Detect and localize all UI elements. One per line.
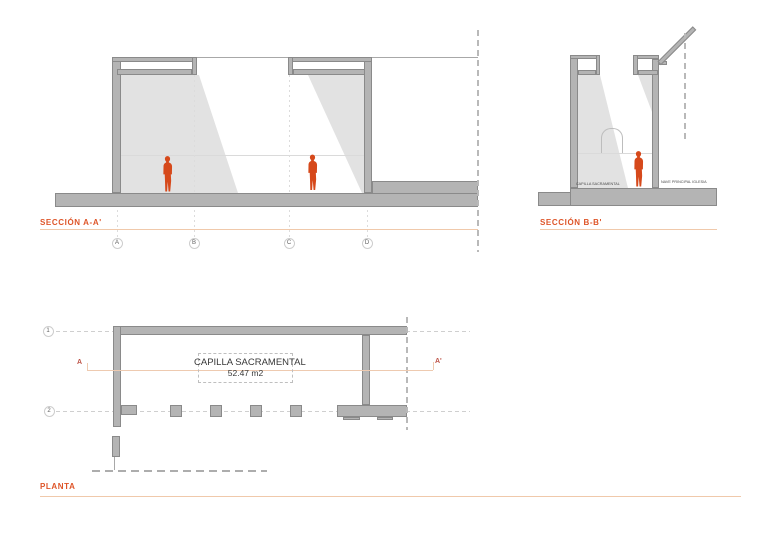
wall-left: [570, 55, 578, 188]
plan-wall-notch: [343, 417, 360, 420]
person-figure: [161, 155, 174, 193]
person-figure: [632, 151, 645, 187]
section-aa-rule: [40, 229, 478, 230]
section-bb-title: SECCIÓN B-B': [540, 218, 602, 227]
skylight-slab: [578, 70, 596, 75]
plan-wall-stub: [121, 405, 137, 415]
section-boundary-dashed-line: [684, 33, 686, 140]
grid-bubble-label: 2: [47, 408, 50, 414]
plan-boundary-dashed-line: [406, 317, 408, 430]
wall-left: [112, 57, 121, 193]
plan-column: [170, 405, 182, 417]
arched-niche: [601, 128, 623, 153]
plan-threshold-dashed-line: [92, 470, 267, 472]
floor-label-nave: NAVE PRINCIPAL IGLESIA: [661, 180, 707, 184]
section-marker-a: A: [77, 359, 82, 366]
grid-bubble-label: 1: [46, 328, 49, 334]
grid-bubble-label: B: [192, 240, 196, 246]
floor-label-capilla: CAPILLA SACRAMENTAL: [576, 182, 620, 186]
grid-bubble-label: D: [365, 240, 369, 246]
plan-column: [290, 405, 302, 417]
gridline-c: [289, 60, 290, 237]
plan-wall-lower-block: [112, 436, 120, 457]
room-area: 52.47 m2: [198, 368, 293, 378]
plan-wall-bottom-right: [337, 405, 407, 417]
grid-bubble-label: A: [115, 240, 119, 246]
grid-bubble-a: A: [112, 238, 123, 249]
grid-bubble-b: B: [189, 238, 200, 249]
section-cut-riser: [87, 363, 88, 370]
architectural-drawing-sheet: SECCIÓN A-A' A B C D: [0, 0, 780, 549]
skylight-slab: [293, 69, 365, 75]
plan-wall-notch: [377, 417, 393, 420]
grid-bubble-label: C: [287, 240, 291, 246]
skylight-post: [596, 55, 600, 75]
skylight-post: [192, 57, 197, 75]
plan-wall-trace-line: [114, 457, 115, 470]
sloped-roof: [657, 26, 696, 65]
plan-column: [250, 405, 262, 417]
plan-rule: [40, 496, 741, 497]
skylight-beam: [112, 57, 197, 62]
ground-slab: [55, 193, 478, 207]
gridline-b: [194, 60, 195, 237]
section-aa-title: SECCIÓN A-A': [40, 218, 102, 227]
wall-right: [364, 58, 372, 193]
plan-wall-left: [113, 326, 121, 427]
section-bb-rule: [540, 229, 717, 230]
section-marker-a-prime: A': [435, 358, 442, 365]
plan-title: PLANTA: [40, 482, 75, 491]
skylight-slab: [117, 69, 192, 75]
ground-slab: [570, 188, 717, 206]
skylight-beam: [288, 57, 372, 62]
skylight-slab: [638, 70, 658, 75]
wall-right: [652, 59, 659, 188]
plan-wall-top: [113, 326, 407, 335]
grid-bubble-c: C: [284, 238, 295, 249]
datum-line: [121, 155, 365, 156]
section-cut-riser: [433, 362, 434, 370]
section-boundary-dashed-line: [477, 30, 479, 252]
grid-bubble-d: D: [362, 238, 373, 249]
plan-column: [210, 405, 222, 417]
grid-bubble-2: 2: [44, 406, 55, 417]
room-name: CAPILLA SACRAMENTAL: [194, 357, 298, 368]
ground-slab-stub: [538, 192, 571, 206]
person-figure: [306, 152, 319, 193]
grid-bubble-1: 1: [43, 326, 54, 337]
